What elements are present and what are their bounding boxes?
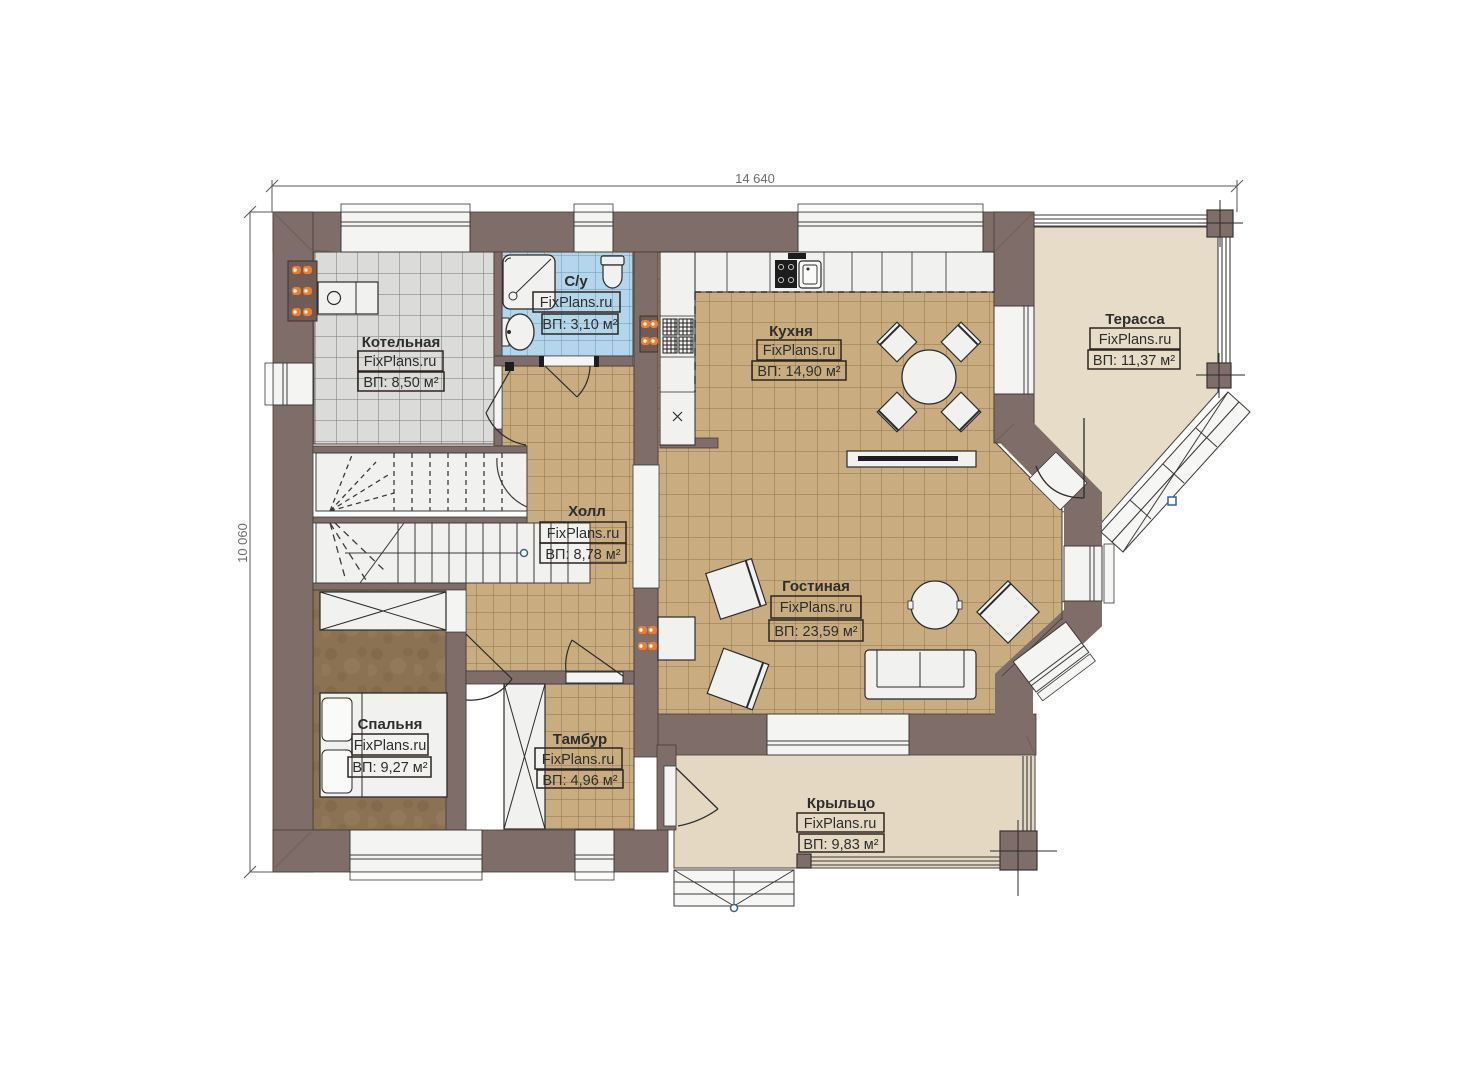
svg-text:ВП: 9,27 м²: ВП: 9,27 м²	[352, 760, 427, 776]
svg-text:10 060: 10 060	[235, 523, 250, 563]
svg-text:14 640: 14 640	[735, 171, 775, 186]
svg-text:Терасса: Терасса	[1105, 311, 1165, 328]
svg-text:Спальня: Спальня	[358, 716, 423, 733]
svg-text:FixPlans.ru: FixPlans.ru	[804, 816, 877, 832]
svg-text:FixPlans.ru: FixPlans.ru	[780, 600, 853, 616]
svg-text:ВП: 11,37 м²: ВП: 11,37 м²	[1093, 353, 1175, 369]
svg-text:ВП: 8,78 м²: ВП: 8,78 м²	[545, 547, 620, 563]
svg-text:Тамбур: Тамбур	[553, 731, 607, 748]
svg-text:Холл: Холл	[568, 503, 606, 520]
svg-text:FixPlans.ru: FixPlans.ru	[542, 752, 615, 768]
svg-text:ВП: 4,96 м²: ВП: 4,96 м²	[542, 773, 617, 789]
svg-text:ВП: 23,59 м²: ВП: 23,59 м²	[774, 624, 857, 640]
svg-text:FixPlans.ru: FixPlans.ru	[364, 354, 437, 370]
svg-text:FixPlans.ru: FixPlans.ru	[354, 738, 427, 754]
svg-text:ВП: 8,50 м²: ВП: 8,50 м²	[363, 375, 438, 391]
svg-text:FixPlans.ru: FixPlans.ru	[547, 526, 620, 542]
svg-text:ВП: 3,10 м²: ВП: 3,10 м²	[542, 317, 617, 333]
svg-text:Гостиная: Гостиная	[782, 578, 850, 595]
svg-text:С/у: С/у	[564, 273, 588, 290]
svg-text:ВП: 14,90 м²: ВП: 14,90 м²	[757, 364, 840, 380]
svg-text:Котельная: Котельная	[362, 334, 441, 351]
svg-text:ВП: 9,83 м²: ВП: 9,83 м²	[803, 837, 878, 853]
svg-text:Крыльцо: Крыльцо	[807, 795, 875, 812]
svg-text:FixPlans.ru: FixPlans.ru	[763, 343, 836, 359]
svg-text:FixPlans.ru: FixPlans.ru	[540, 295, 613, 311]
svg-text:Кухня: Кухня	[769, 323, 813, 340]
svg-text:FixPlans.ru: FixPlans.ru	[1099, 332, 1172, 348]
